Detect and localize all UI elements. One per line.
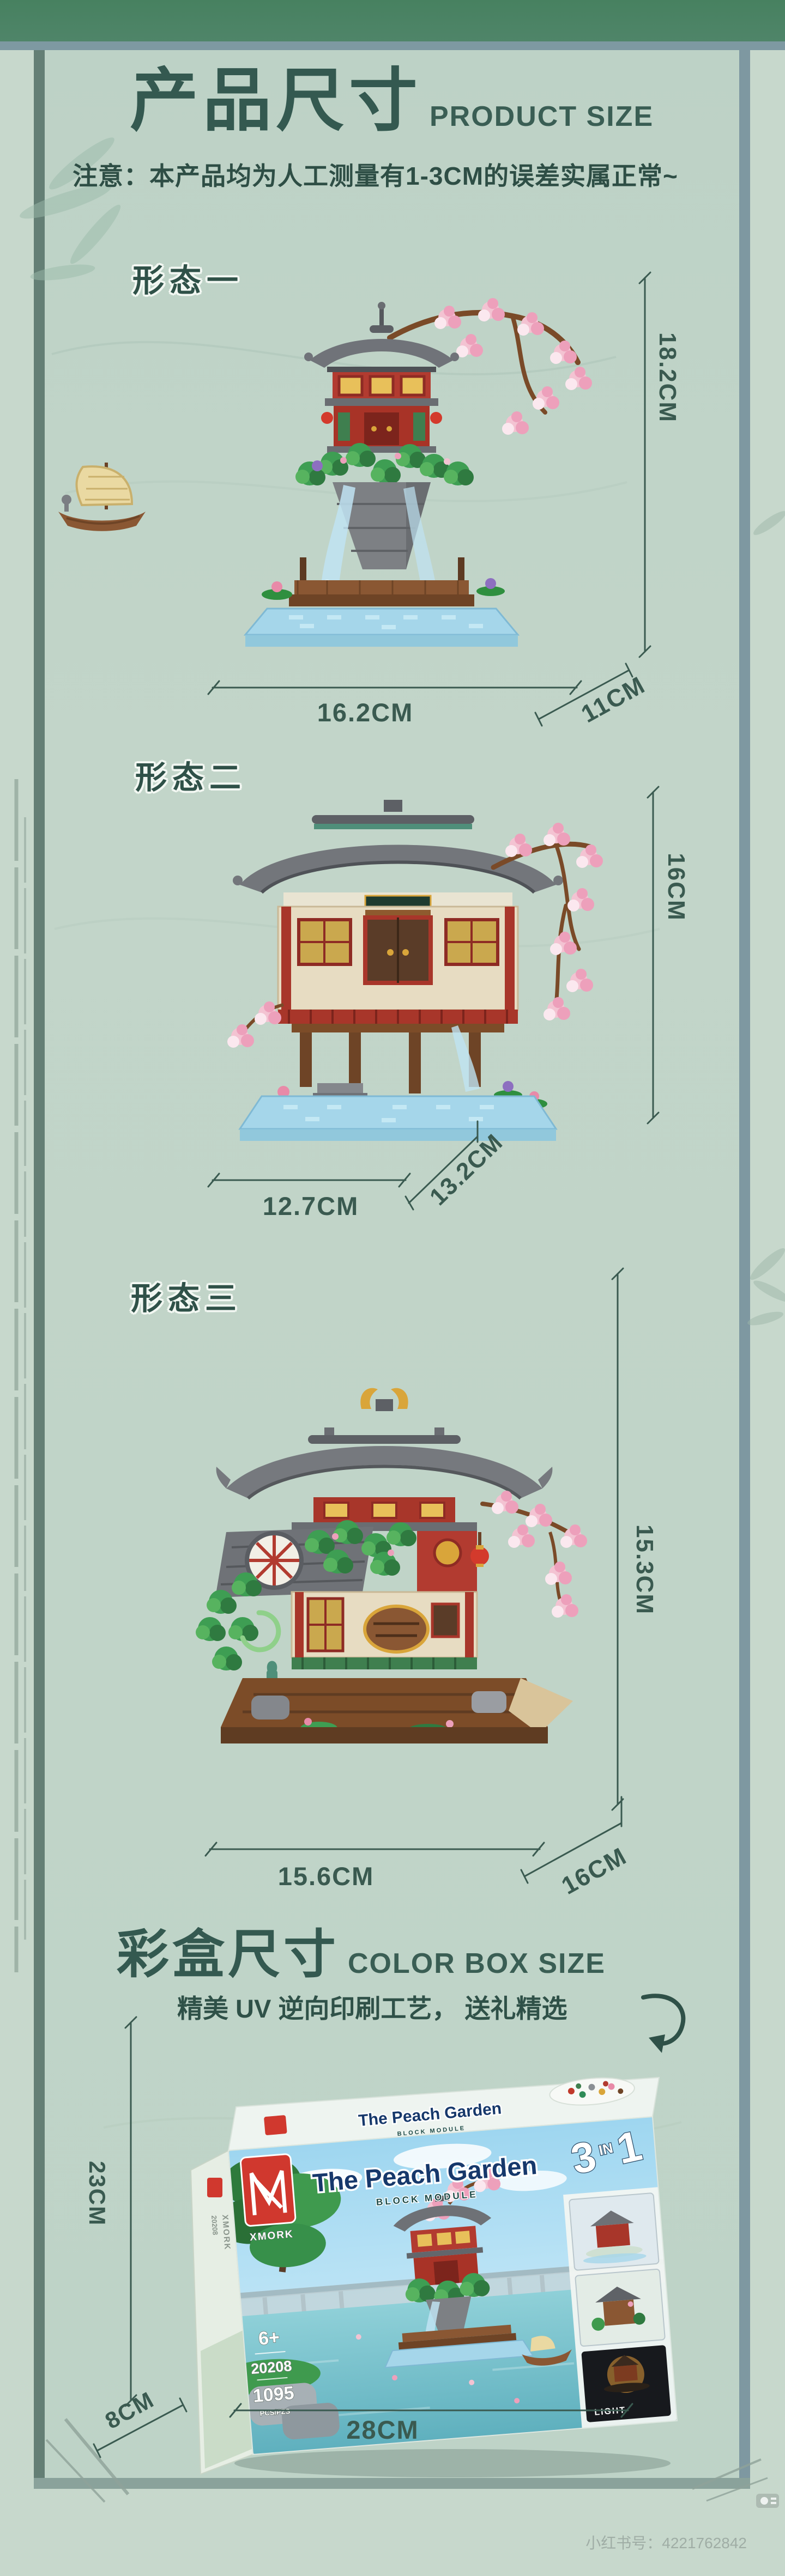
form3-photo	[144, 1373, 624, 1842]
section1-label: 形态一	[132, 255, 244, 301]
box-width-label: 28CM	[301, 2415, 464, 2445]
watermark-text: 小红书号：4221762842	[545, 2531, 747, 2553]
section2-label: 形态二	[135, 752, 246, 798]
form1-height-label: 18.2CM	[654, 323, 681, 432]
box-age-badge: 6+	[258, 2327, 281, 2349]
box-section-title: 彩盒尺寸 COLOR BOX SIZE	[117, 1929, 606, 1981]
box-section-title-cn: 彩盒尺寸	[117, 1929, 339, 1981]
form2-photo	[174, 780, 621, 1178]
box-piece-count: 1095	[252, 2383, 295, 2407]
form2-width-label: 12.7CM	[229, 1191, 392, 1221]
curved-arrow-icon	[632, 1989, 698, 2057]
box-brand-logo	[240, 2154, 296, 2226]
watermark-icon	[756, 2491, 780, 2510]
product-size-infographic: 产品尺寸 PRODUCT SIZE 注意：本产品均为人工测量有1-3CM的误差实…	[0, 0, 785, 2576]
form2-height-label: 16CM	[662, 833, 690, 941]
form1-boat-photo	[50, 460, 154, 534]
form1-width-label: 16.2CM	[283, 697, 447, 727]
page-title: 产品尺寸 PRODUCT SIZE	[130, 66, 654, 135]
box-item-no: 20208	[250, 2358, 292, 2377]
page-title-cn: 产品尺寸	[130, 66, 422, 135]
box-height-label: 23CM	[84, 2139, 110, 2248]
box-section-subtitle: 精美 UV 逆向印刷工艺， 送礼精选	[177, 1988, 567, 2025]
form3-width-label: 15.6CM	[244, 1861, 408, 1891]
box-front-face: LIGHT 3 IN 1 The Peach Garden BLOCK MODU…	[199, 2117, 677, 2457]
measure-notice: 注意：本产品均为人工测量有1-3CM的误差实属正常~	[73, 156, 678, 192]
page-title-en: PRODUCT SIZE	[430, 102, 654, 135]
box-section-title-en: COLOR BOX SIZE	[348, 1949, 606, 1981]
box-side-item-no: 20208	[210, 2215, 219, 2235]
form3-height-label: 15.3CM	[631, 1515, 658, 1624]
section3-label: 形态三	[131, 1273, 242, 1319]
form1-photo	[164, 286, 600, 667]
